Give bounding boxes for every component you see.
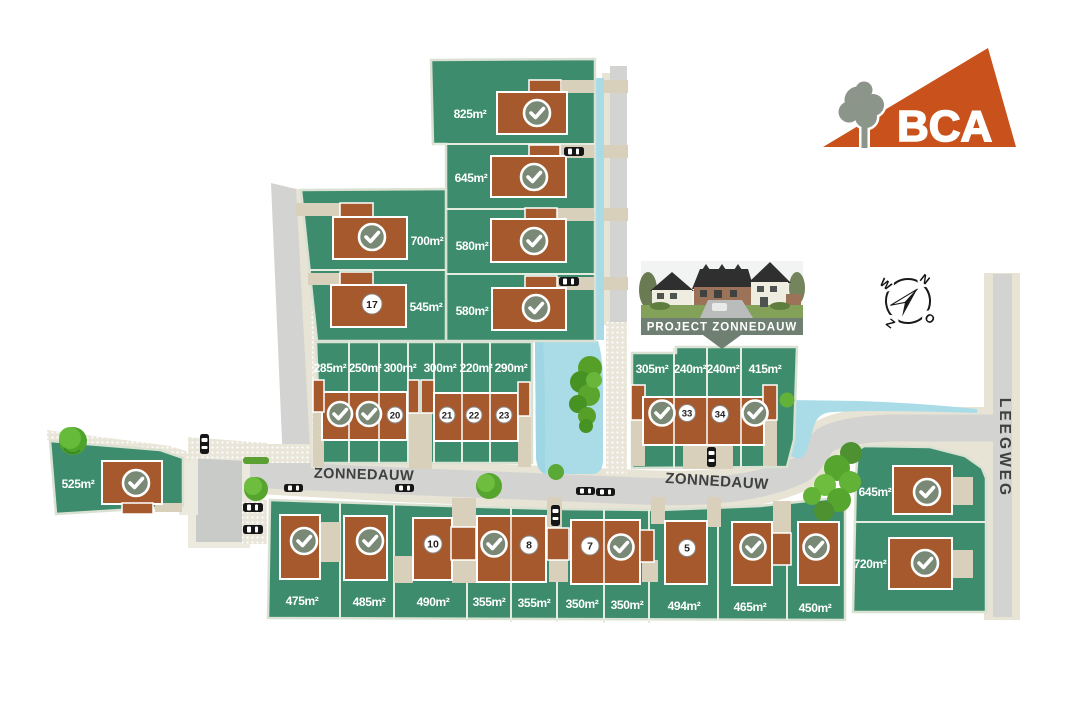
svg-text:W: W (877, 275, 895, 293)
svg-text:720m²: 720m² (854, 557, 887, 571)
svg-text:645m²: 645m² (455, 171, 488, 185)
svg-text:355m²: 355m² (473, 595, 506, 609)
svg-text:825m²: 825m² (454, 107, 487, 121)
svg-text:545m²: 545m² (410, 300, 443, 314)
svg-text:415m²: 415m² (749, 362, 782, 376)
svg-text:465m²: 465m² (734, 600, 767, 614)
svg-text:305m²: 305m² (636, 362, 669, 376)
svg-text:10: 10 (427, 539, 439, 551)
svg-text:525m²: 525m² (62, 477, 95, 491)
svg-text:300m²: 300m² (424, 361, 457, 375)
svg-text:700m²: 700m² (411, 234, 444, 248)
svg-text:300m²: 300m² (384, 361, 417, 375)
svg-text:21: 21 (442, 411, 453, 422)
svg-text:485m²: 485m² (353, 595, 386, 609)
svg-text:475m²: 475m² (286, 594, 319, 608)
svg-text:23: 23 (499, 411, 510, 422)
svg-text:ZONNEDAUW: ZONNEDAUW (314, 466, 415, 485)
svg-text:BCA: BCA (897, 102, 992, 151)
svg-text:5: 5 (684, 543, 690, 555)
svg-text:20: 20 (390, 411, 401, 422)
svg-text:7: 7 (587, 541, 593, 553)
svg-text:450m²: 450m² (799, 601, 832, 615)
svg-text:LEEGWEG: LEEGWEG (996, 398, 1013, 498)
svg-text:580m²: 580m² (456, 239, 489, 253)
svg-text:240m²: 240m² (707, 362, 740, 376)
svg-text:290m²: 290m² (495, 361, 528, 375)
svg-text:355m²: 355m² (518, 596, 551, 610)
svg-text:33: 33 (682, 409, 693, 420)
svg-text:250m²: 250m² (349, 361, 382, 375)
svg-text:8: 8 (526, 540, 532, 552)
svg-text:490m²: 490m² (417, 595, 450, 609)
svg-text:PROJECT ZONNEDAUW: PROJECT ZONNEDAUW (647, 322, 798, 334)
svg-text:350m²: 350m² (566, 597, 599, 611)
svg-text:645m²: 645m² (859, 485, 892, 499)
svg-text:34: 34 (715, 410, 726, 421)
svg-text:494m²: 494m² (668, 599, 701, 613)
svg-text:220m²: 220m² (460, 361, 493, 375)
svg-text:285m²: 285m² (314, 361, 347, 375)
svg-text:240m²: 240m² (674, 362, 707, 376)
svg-text:350m²: 350m² (611, 598, 644, 612)
svg-text:17: 17 (366, 299, 378, 311)
svg-text:580m²: 580m² (456, 304, 489, 318)
svg-text:22: 22 (469, 411, 480, 422)
